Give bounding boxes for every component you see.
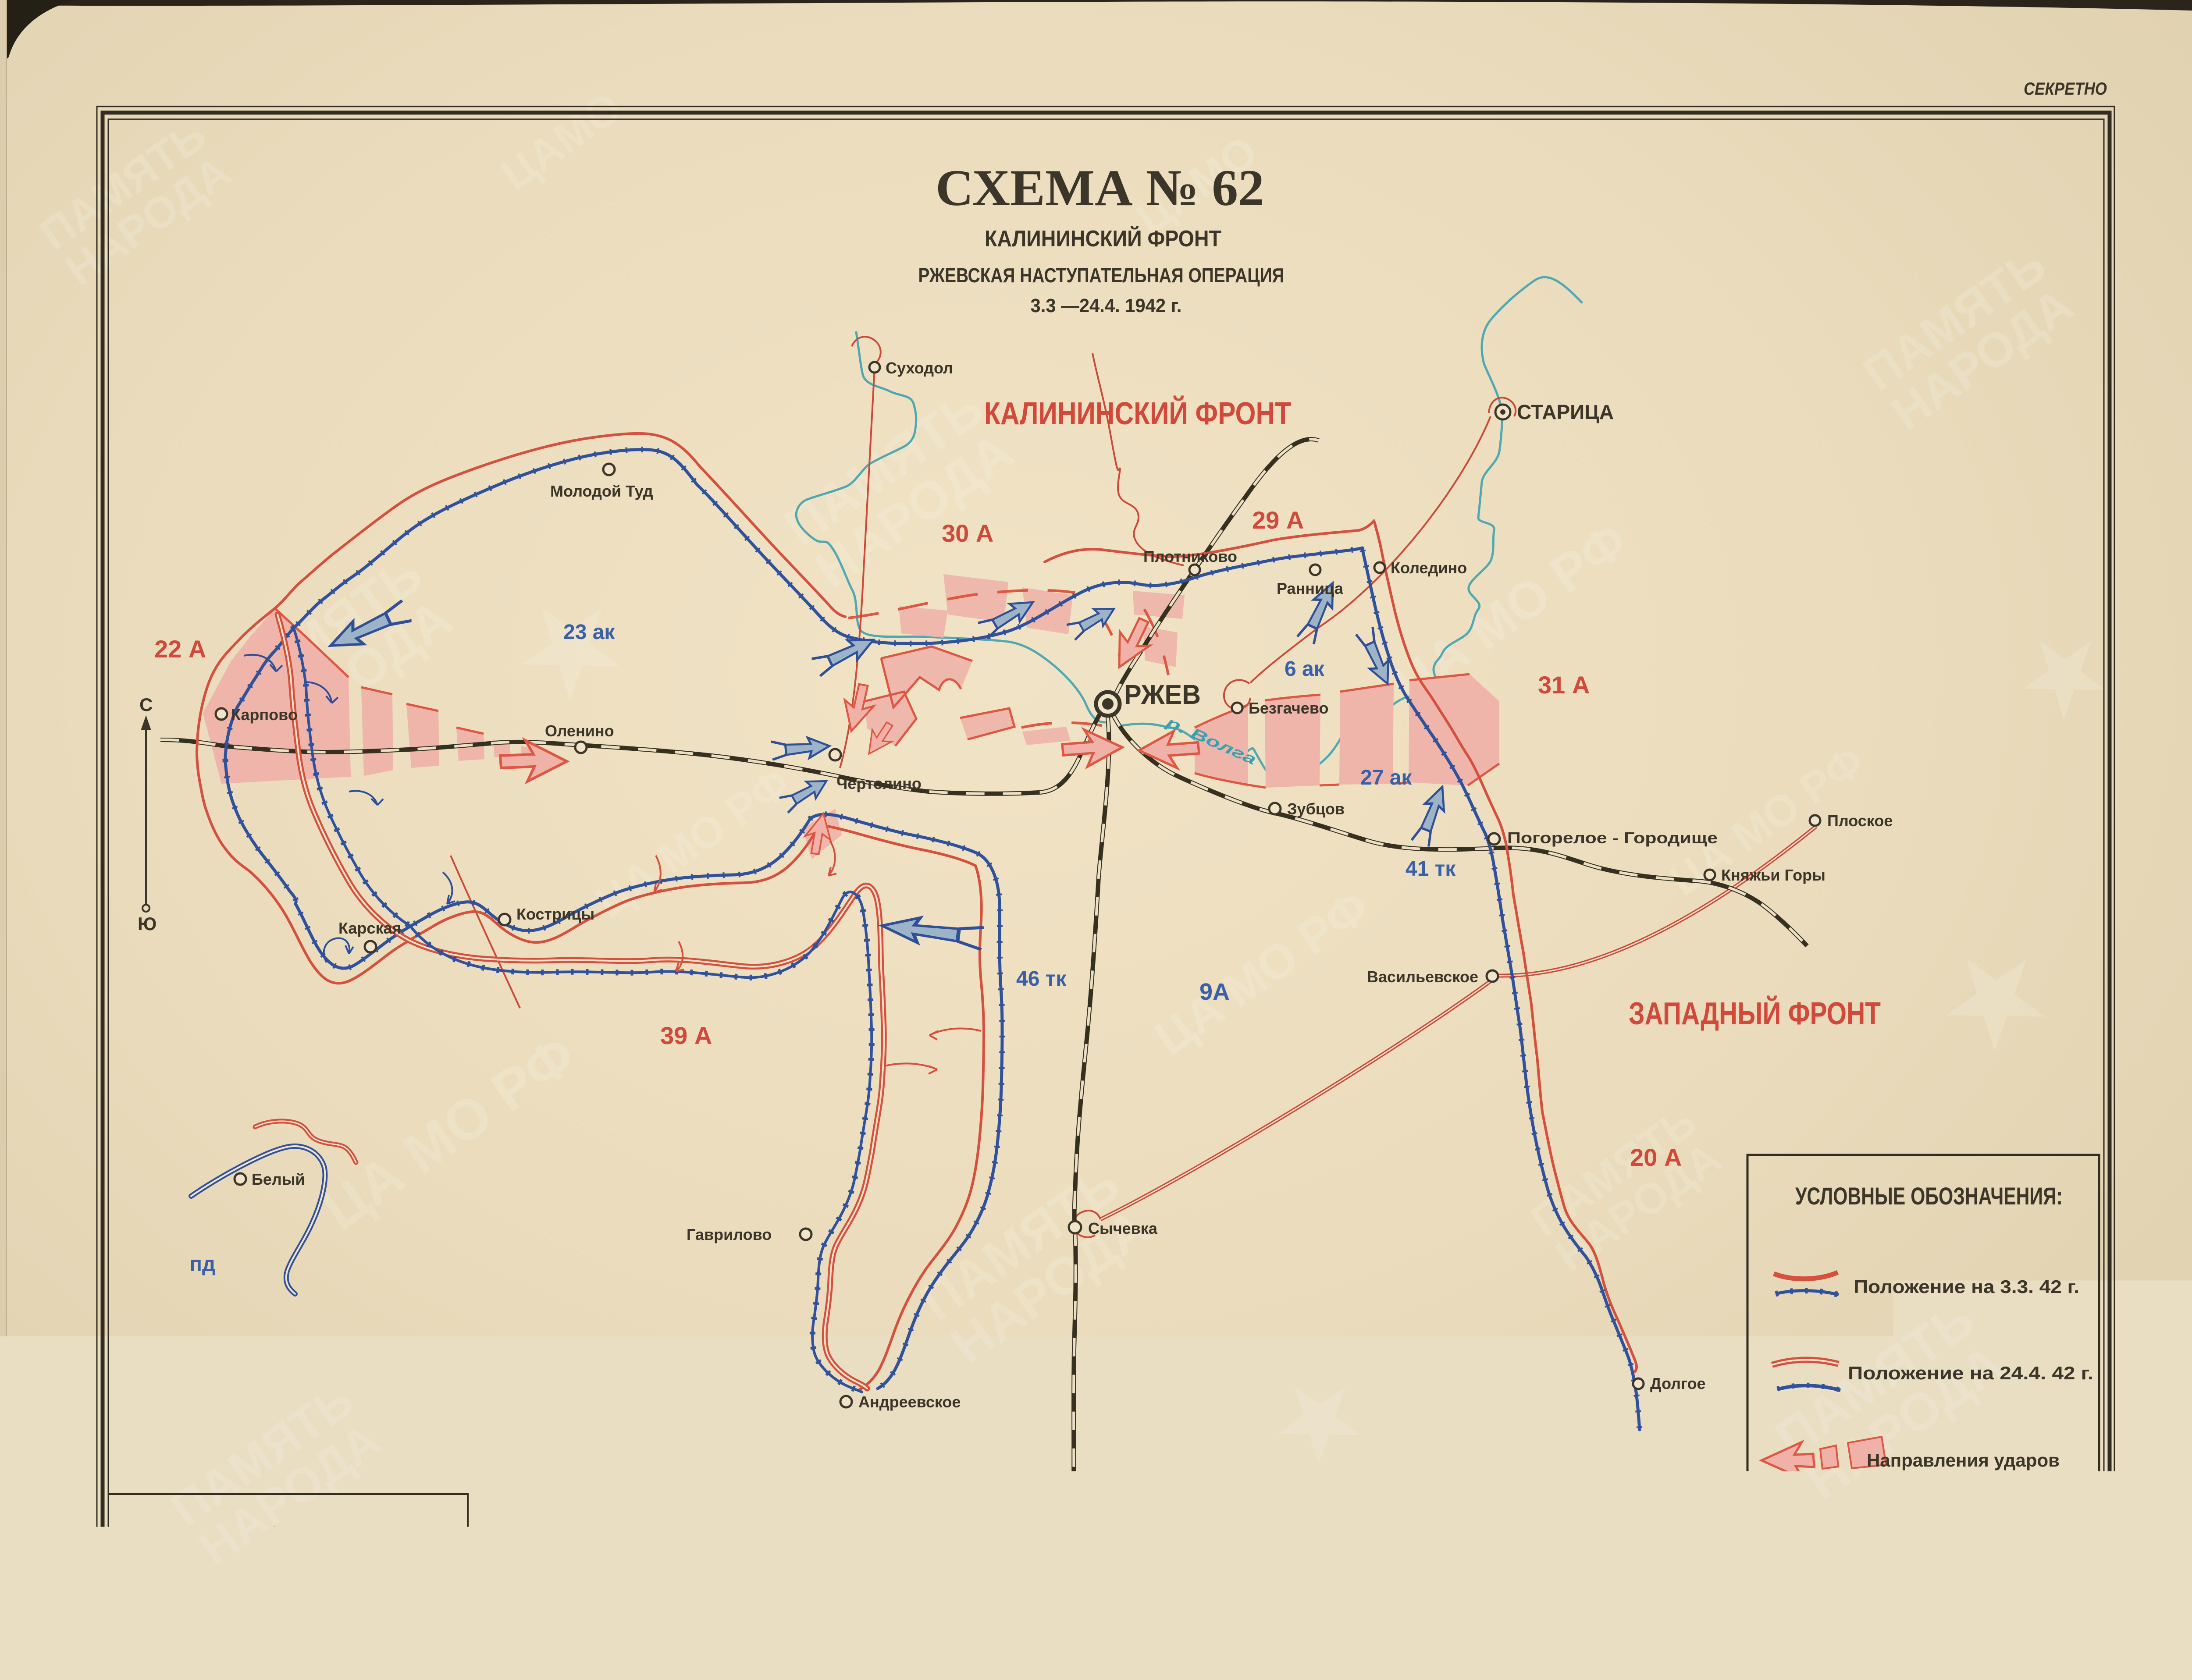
svg-text:Погорелое - Городище: Погорелое - Городище: [1507, 829, 1718, 847]
svg-text:Положение на 3.3. 42 г.: Положение на 3.3. 42 г.: [1854, 1276, 2079, 1297]
svg-text:РЖЕВСКАЯ НАСТУПАТЕЛЬНАЯ ОПЕРАЦ: РЖЕВСКАЯ НАСТУПАТЕЛЬНАЯ ОПЕРАЦИЯ: [918, 264, 1285, 287]
svg-text:Безгачево: Безгачево: [1249, 699, 1328, 717]
svg-text:КАЛИНИНСКИЙ ФРОНТ: КАЛИНИНСКИЙ ФРОНТ: [985, 226, 1221, 252]
svg-text:Зубцов: Зубцов: [1287, 800, 1345, 818]
svg-text:С: С: [139, 694, 153, 715]
svg-text:27 ак: 27 ак: [1360, 766, 1412, 789]
svg-text:Оленино: Оленино: [545, 722, 614, 740]
svg-text:46 тк: 46 тк: [1016, 967, 1067, 991]
svg-text:Карпово: Карпово: [231, 706, 298, 724]
svg-text:31 А: 31 А: [1538, 671, 1590, 699]
svg-text:9А: 9А: [1199, 979, 1230, 1005]
svg-text:Ранница: Ранница: [1277, 579, 1344, 597]
svg-text:Чертолино: Чертолино: [836, 774, 922, 792]
svg-text:Карская: Карская: [338, 919, 402, 937]
svg-text:Андреевское: Андреевское: [858, 1393, 961, 1411]
svg-text:Долгое: Долгое: [1650, 1375, 1706, 1392]
svg-text:20 А: 20 А: [1630, 1144, 1682, 1171]
svg-text:30 А: 30 А: [942, 519, 993, 547]
svg-text:УСЛОВНЫЕ ОБОЗНАЧЕНИЯ:: УСЛОВНЫЕ ОБОЗНАЧЕНИЯ:: [1795, 1182, 2063, 1210]
svg-text:Княжьи Горы: Княжьи Горы: [1721, 866, 1825, 884]
svg-text:Плотниково: Плотниково: [1143, 547, 1237, 565]
svg-text:Коледино: Коледино: [1391, 559, 1467, 577]
svg-text:РЖЕВ: РЖЕВ: [1124, 680, 1201, 710]
svg-text:Белый: Белый: [252, 1170, 305, 1188]
svg-text:Масштаб 1:500 000: Масштаб 1:500 000: [168, 1523, 394, 1546]
svg-text:КАЛИНИНСКИЙ ФРОНТ: КАЛИНИНСКИЙ ФРОНТ: [984, 395, 1291, 431]
svg-text:22 А: 22 А: [154, 635, 206, 663]
svg-text:Молодой Туд: Молодой Туд: [550, 482, 653, 500]
svg-text:Положение на 24.4. 42 г.: Положение на 24.4. 42 г.: [1848, 1363, 2093, 1383]
svg-text:Ю: Ю: [138, 913, 157, 934]
svg-text:пд: пд: [189, 1253, 215, 1276]
svg-text:СЕКРЕТНО: СЕКРЕТНО: [2024, 79, 2107, 99]
svg-text:Суходол: Суходол: [886, 359, 953, 377]
svg-text:3.3 —24.4. 1942 г.: 3.3 —24.4. 1942 г.: [1031, 295, 1182, 316]
svg-text:ЗАПАДНЫЙ ФРОНТ: ЗАПАДНЫЙ ФРОНТ: [1629, 995, 1881, 1031]
svg-text:41 тк: 41 тк: [1406, 857, 1456, 881]
svg-text:Гаврилово: Гаврилово: [687, 1225, 772, 1243]
svg-text:Направления ударов: Направления ударов: [1867, 1450, 2060, 1470]
svg-text:Сычевка: Сычевка: [1088, 1219, 1158, 1237]
svg-text:69: 69: [1101, 1591, 1121, 1613]
svg-text:СТАРИЦА: СТАРИЦА: [1517, 401, 1614, 423]
svg-text:39 А: 39 А: [660, 1022, 712, 1049]
svg-text:29 А: 29 А: [1252, 506, 1304, 534]
svg-text:Кострицы: Кострицы: [516, 905, 594, 923]
svg-text:Васильевское: Васильевское: [1367, 968, 1478, 986]
svg-text:Плоское: Плоское: [1827, 812, 1893, 830]
svg-text:СХЕМА № 62: СХЕМА № 62: [936, 159, 1264, 217]
svg-text:23 ак: 23 ак: [563, 621, 615, 644]
svg-text:6 ак: 6 ак: [1285, 657, 1325, 681]
